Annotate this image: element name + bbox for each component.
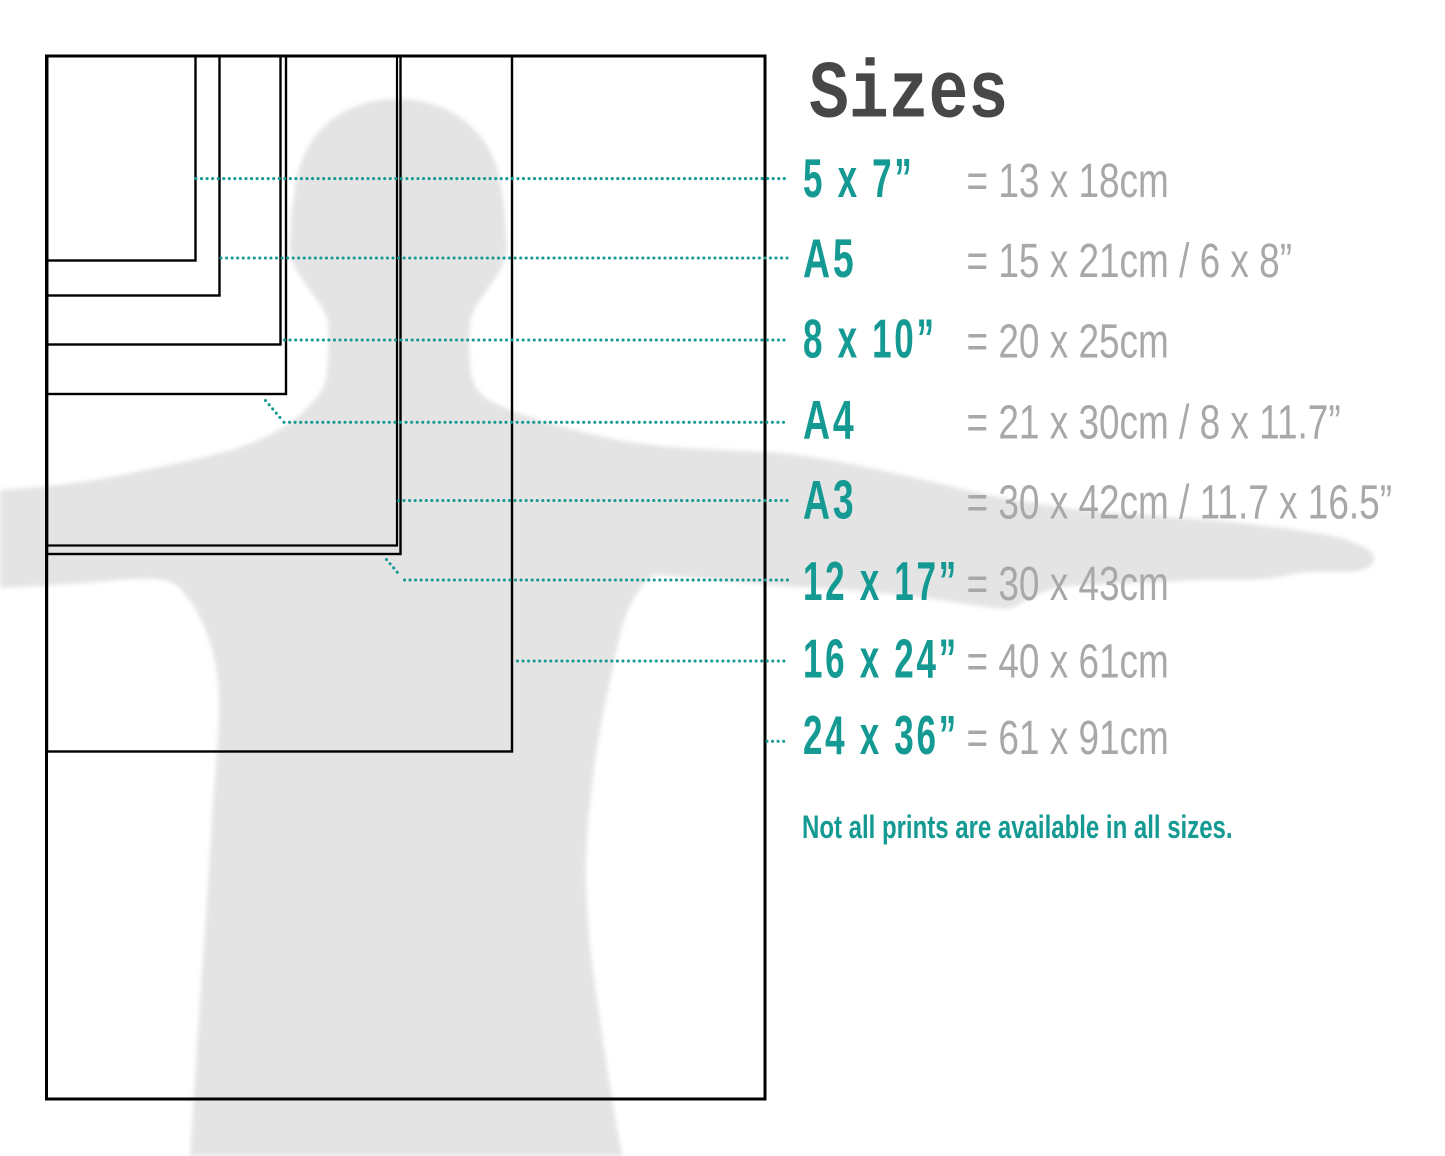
svg-text:Sizes: Sizes — [809, 49, 1008, 141]
svg-text:24 x 36”: 24 x 36” — [803, 704, 959, 766]
svg-text:= 40 x 61cm: = 40 x 61cm — [967, 635, 1169, 689]
svg-text:= 30 x 43cm: = 30 x 43cm — [967, 557, 1169, 611]
svg-text:= 15 x 21cm / 6 x 8”: = 15 x 21cm / 6 x 8” — [967, 234, 1293, 288]
svg-text:= 61 x 91cm: = 61 x 91cm — [967, 711, 1169, 765]
svg-text:Not all prints are available i: Not all prints are available in all size… — [802, 809, 1233, 845]
svg-text:A4: A4 — [803, 388, 857, 450]
svg-text:16 x 24”: 16 x 24” — [803, 627, 959, 689]
svg-text:= 20 x 25cm: = 20 x 25cm — [967, 315, 1169, 369]
svg-text:5 x 7”: 5 x 7” — [803, 147, 915, 209]
svg-text:8 x 10”: 8 x 10” — [803, 307, 937, 369]
svg-text:A5: A5 — [803, 227, 857, 289]
svg-text:= 21 x 30cm / 8 x 11.7”: = 21 x 30cm / 8 x 11.7” — [967, 396, 1341, 450]
svg-text:= 30 x 42cm / 11.7 x 16.5”: = 30 x 42cm / 11.7 x 16.5” — [967, 476, 1393, 530]
svg-text:12 x 17”: 12 x 17” — [803, 550, 959, 612]
svg-text:A3: A3 — [803, 468, 857, 530]
svg-text:= 13 x 18cm: = 13 x 18cm — [967, 154, 1169, 208]
